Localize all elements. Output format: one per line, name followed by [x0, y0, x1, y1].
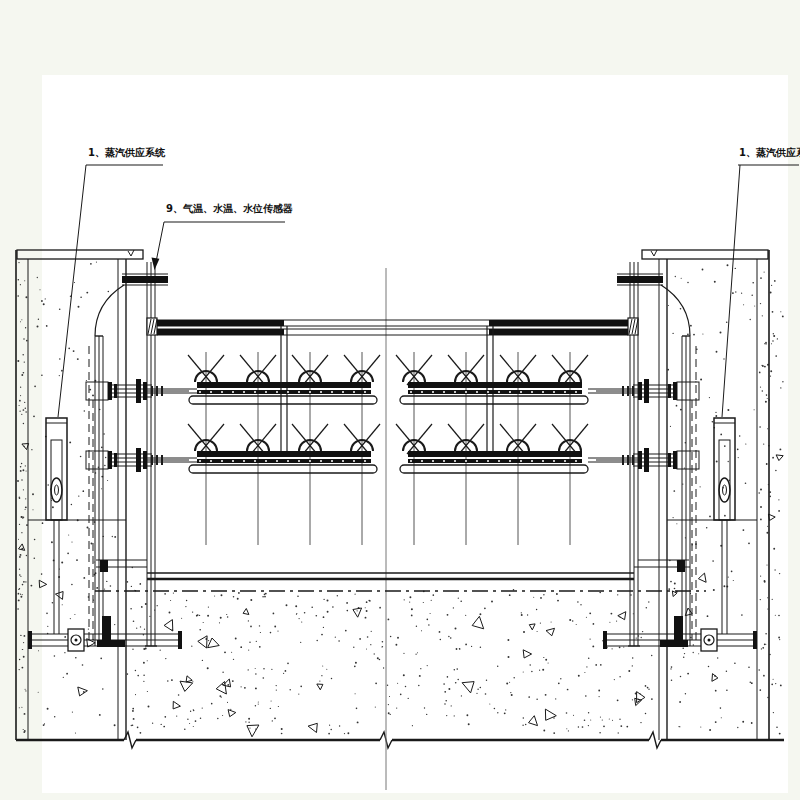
stipple-dot: [25, 327, 26, 328]
stipple-dot: [409, 602, 410, 603]
aggregate-triangle: [19, 544, 25, 551]
stipple-dot: [645, 713, 647, 715]
stipple-dot: [101, 488, 102, 489]
stipple-dot: [603, 725, 605, 727]
stipple-dot: [73, 350, 75, 352]
pipe-flange: [108, 382, 112, 400]
stipple-dot: [416, 626, 417, 627]
stipple-dot: [82, 664, 84, 666]
stipple-dot: [451, 705, 452, 706]
stipple-dot: [66, 673, 68, 675]
stipple-dot: [763, 675, 765, 677]
stipple-dot: [256, 641, 257, 642]
pipe-flange: [114, 453, 117, 467]
stipple-dot: [25, 408, 26, 409]
stipple-dot: [165, 658, 166, 659]
stipple-dot: [455, 628, 457, 630]
stipple-dot: [477, 689, 478, 690]
stipple-dot: [651, 698, 653, 700]
stipple-dot: [586, 617, 587, 618]
stipple-dot: [590, 719, 591, 720]
stipple-dot: [489, 703, 490, 704]
stipple-dot: [772, 599, 773, 600]
stipple-dot: [23, 423, 24, 424]
stipple-dot: [130, 608, 132, 610]
stipple-dot: [99, 714, 101, 716]
stipple-dot: [687, 673, 689, 675]
stipple-dot: [353, 647, 354, 648]
stipple-dot: [84, 410, 85, 411]
pipe-flange: [668, 384, 671, 398]
stipple-dot: [295, 605, 297, 607]
stipple-dot: [131, 586, 132, 587]
stipple-dot: [509, 594, 511, 596]
stipple-dot: [20, 466, 22, 468]
stipple-dot: [22, 517, 24, 519]
stipple-dot: [92, 394, 94, 396]
stipple-dot: [231, 652, 232, 653]
stipple-dot: [327, 600, 329, 602]
stipple-dot: [578, 726, 579, 727]
stipple-dot: [23, 729, 24, 730]
stipple-dot: [41, 573, 43, 575]
stipple-dot: [332, 606, 334, 608]
stipple-dot: [778, 637, 780, 639]
stipple-dot: [86, 380, 87, 381]
stipple-dot: [403, 653, 404, 654]
stipple-dot: [673, 490, 675, 492]
stipple-dot: [426, 619, 428, 621]
stipple-dot: [321, 675, 322, 676]
stipple-dot: [41, 300, 43, 302]
stipple-dot: [33, 415, 35, 417]
steam-header-pipe: [157, 329, 284, 335]
stipple-dot: [598, 696, 599, 697]
stipple-dot: [762, 390, 764, 392]
stipple-dot: [497, 666, 498, 667]
stipple-dot: [26, 470, 27, 471]
stipple-dot: [19, 588, 20, 589]
stipple-dot: [771, 285, 772, 286]
stipple-dot: [238, 592, 240, 594]
stipple-dot: [409, 596, 411, 598]
pipe-flange: [673, 451, 677, 469]
stipple-dot: [245, 721, 246, 722]
stipple-dot: [430, 613, 431, 614]
stipple-dot: [761, 365, 762, 366]
stipple-dot: [381, 646, 382, 647]
stipple-dot: [25, 296, 27, 298]
stipple-dot: [573, 715, 574, 716]
pipe-flange: [668, 453, 671, 467]
stipple-dot: [322, 666, 323, 667]
stipple-dot: [224, 651, 226, 653]
stipple-dot: [748, 666, 750, 668]
stipple-dot: [143, 675, 145, 677]
stipple-dot: [227, 684, 229, 686]
stipple-dot: [742, 529, 744, 531]
stipple-dot: [772, 457, 774, 459]
stipple-dot: [602, 719, 603, 720]
stipple-dot: [773, 679, 774, 680]
stipple-dot: [25, 506, 27, 508]
stipple-dot: [388, 712, 390, 714]
stipple-dot: [743, 304, 744, 305]
stipple-dot: [76, 559, 78, 561]
stipple-dot: [700, 726, 701, 727]
stipple-dot: [63, 677, 64, 678]
stipple-dot: [770, 375, 771, 376]
stipple-dot: [356, 707, 358, 709]
stipple-dot: [21, 463, 22, 464]
stipple-dot: [248, 669, 249, 670]
stipple-dot: [255, 673, 257, 675]
stipple-dot: [595, 664, 597, 666]
stipple-dot: [219, 622, 220, 623]
stipple-dot: [233, 659, 234, 660]
stipple-dot: [741, 293, 742, 294]
stipple-dot: [724, 445, 726, 447]
stipple-dot: [23, 656, 25, 658]
stipple-dot: [702, 333, 703, 334]
stipple-dot: [46, 612, 48, 614]
stipple-dot: [20, 284, 21, 285]
stipple-dot: [38, 692, 39, 693]
stipple-dot: [132, 710, 134, 712]
stipple-dot: [713, 589, 715, 591]
stipple-dot: [24, 361, 25, 362]
stipple-dot: [712, 421, 714, 423]
stipple-dot: [779, 733, 781, 735]
stipple-dot: [23, 409, 25, 411]
stipple-dot: [331, 678, 332, 679]
stipple-dot: [330, 729, 331, 730]
stipple-dot: [765, 342, 767, 344]
stipple-dot: [388, 704, 389, 705]
stipple-dot: [741, 614, 743, 616]
stipple-dot: [21, 532, 22, 533]
stipple-dot: [197, 614, 199, 616]
stipple-dot: [326, 669, 327, 670]
stipple-dot: [623, 647, 624, 648]
stipple-dot: [698, 653, 699, 654]
stipple-dot: [255, 705, 256, 706]
stipple-dot: [87, 526, 89, 528]
stipple-dot: [276, 685, 277, 686]
stipple-dot: [17, 295, 19, 297]
stipple-dot: [137, 675, 139, 677]
stipple-dot: [297, 596, 299, 598]
stipple-dot: [745, 443, 746, 444]
stipple-dot: [270, 708, 271, 709]
stipple-dot: [497, 712, 498, 713]
stipple-dot: [592, 645, 594, 647]
stipple-dot: [617, 594, 618, 595]
stipple-dot: [417, 652, 418, 653]
stipple-dot: [397, 683, 398, 684]
stipple-dot: [459, 649, 460, 650]
stipple-dot: [354, 666, 356, 668]
stipple-dot: [444, 703, 446, 705]
stipple-dot: [237, 598, 239, 600]
stipple-dot: [774, 280, 776, 282]
stipple-dot: [19, 411, 20, 412]
stipple-dot: [675, 276, 676, 277]
stipple-dot: [164, 716, 166, 718]
stipple-dot: [195, 720, 197, 722]
stipple-dot: [114, 724, 116, 726]
stipple-dot: [296, 613, 297, 614]
stipple-dot: [548, 662, 549, 663]
stipple-dot: [34, 557, 36, 559]
stipple-dot: [346, 610, 348, 612]
stipple-dot: [759, 426, 761, 428]
stipple-dot: [21, 414, 22, 415]
stipple-dot: [733, 580, 734, 581]
stipple-dot: [765, 644, 766, 645]
stipple-dot: [759, 372, 761, 374]
stipple-dot: [717, 657, 718, 658]
stipple-dot: [539, 670, 540, 671]
stipple-dot: [176, 715, 177, 716]
stipple-dot: [359, 638, 361, 640]
stipple-dot: [140, 626, 141, 627]
stipple-dot: [184, 728, 186, 730]
stipple-dot: [779, 639, 780, 640]
stipple-dot: [418, 685, 419, 686]
stipple-dot: [764, 272, 765, 273]
stipple-dot: [763, 443, 764, 444]
stipple-dot: [750, 319, 751, 320]
stipple-dot: [365, 607, 366, 608]
stipple-dot: [208, 640, 209, 641]
stipple-dot: [723, 358, 724, 359]
stipple-dot: [628, 670, 630, 672]
stipple-dot: [780, 387, 781, 388]
stipple-dot: [400, 694, 402, 696]
stipple-dot: [737, 448, 739, 450]
stipple-dot: [766, 532, 768, 534]
stipple-dot: [486, 680, 487, 681]
stipple-dot: [367, 636, 369, 638]
stipple-dot: [75, 657, 77, 659]
stipple-dot: [17, 608, 19, 610]
stipple-dot: [38, 319, 39, 320]
stipple-dot: [468, 723, 470, 725]
pipe-flange: [136, 448, 141, 472]
stipple-dot: [221, 594, 223, 596]
stipple-dot: [281, 728, 283, 730]
pipe-flange: [143, 451, 147, 469]
stipple-dot: [568, 730, 569, 731]
stipple-dot: [674, 583, 676, 585]
stipple-dot: [34, 385, 36, 387]
stipple-dot: [767, 608, 768, 609]
steam-header-pipe: [489, 329, 628, 335]
stipple-dot: [455, 682, 457, 684]
stipple-dot: [767, 597, 768, 598]
stipple-dot: [589, 612, 591, 614]
stipple-dot: [39, 289, 40, 290]
stipple-dot: [249, 641, 250, 642]
stipple-dot: [706, 527, 708, 529]
stipple-dot: [461, 695, 462, 696]
pipe-flange: [644, 448, 649, 472]
stipple-dot: [19, 659, 20, 660]
stipple-dot: [327, 611, 329, 613]
stipple-dot: [311, 606, 313, 608]
stipple-dot: [19, 405, 20, 406]
stipple-dot: [651, 655, 652, 656]
stipple-dot: [107, 480, 108, 481]
stipple-dot: [620, 725, 622, 727]
stipple-dot: [44, 723, 45, 724]
stipple-dot: [71, 504, 72, 505]
stipple-dot: [420, 668, 421, 669]
stipple-dot: [773, 333, 774, 334]
stipple-dot: [523, 671, 524, 672]
stipple-dot: [127, 673, 129, 675]
stipple-dot: [181, 618, 182, 619]
stipple-dot: [101, 447, 103, 449]
stipple-dot: [553, 717, 555, 719]
stipple-dot: [262, 677, 264, 679]
stipple-dot: [458, 598, 459, 599]
stipple-dot: [262, 596, 264, 598]
stipple-dot: [136, 628, 137, 629]
stipple-dot: [370, 644, 371, 645]
stipple-dot: [557, 600, 559, 602]
stipple-dot: [192, 611, 193, 612]
stipple-dot: [491, 601, 493, 603]
stipple-dot: [379, 607, 381, 609]
stipple-dot: [371, 631, 372, 632]
stipple-dot: [700, 379, 702, 381]
stipple-dot: [715, 721, 717, 723]
stipple-dot: [321, 634, 323, 636]
stipple-dot: [509, 682, 510, 683]
stipple-dot: [670, 581, 672, 583]
stipple-dot: [22, 469, 24, 471]
stipple-dot: [62, 604, 63, 605]
stipple-dot: [248, 650, 249, 651]
stipple-dot: [23, 372, 25, 374]
stipple-dot: [767, 526, 768, 527]
stipple-dot: [169, 612, 171, 614]
stipple-dot: [283, 673, 284, 674]
stipple-dot: [773, 548, 775, 550]
stipple-dot: [19, 497, 20, 498]
stipple-dot: [676, 523, 677, 524]
stipple-dot: [357, 610, 358, 611]
steam-header-pipe: [157, 320, 284, 326]
stipple-dot: [545, 659, 547, 661]
stipple-dot: [765, 633, 767, 635]
stipple-dot: [775, 615, 776, 616]
stipple-dot: [20, 576, 21, 577]
stipple-dot: [545, 694, 547, 696]
stipple-dot: [47, 484, 49, 486]
steam-header-pipe: [489, 320, 628, 326]
stipple-dot: [21, 374, 23, 376]
stipple-dot: [540, 622, 541, 623]
stipple-dot: [408, 698, 409, 699]
stipple-dot: [323, 627, 324, 628]
stipple-dot: [682, 647, 684, 649]
stipple-dot: [766, 564, 767, 565]
stipple-dot: [585, 695, 587, 697]
stipple-dot: [648, 601, 649, 602]
stipple-dot: [25, 411, 27, 413]
stipple-dot: [668, 588, 670, 590]
stipple-dot: [139, 583, 141, 585]
stipple-dot: [329, 725, 330, 726]
stipple-dot: [143, 681, 144, 682]
callout-steam-supply-right: 1、蒸汽供应系统: [739, 147, 800, 158]
stipple-dot: [20, 395, 21, 396]
stipple-dot: [258, 701, 259, 702]
stipple-dot: [767, 398, 768, 399]
stipple-dot: [566, 728, 567, 729]
stipple-dot: [222, 671, 223, 672]
stipple-dot: [276, 689, 277, 690]
stipple-dot: [619, 646, 621, 648]
stipple-dot: [18, 262, 19, 263]
stipple-dot: [37, 277, 38, 278]
sensor-conduit: [617, 276, 663, 283]
stipple-dot: [614, 679, 615, 680]
stipple-dot: [540, 597, 542, 599]
paper-sheet: [42, 75, 788, 793]
stipple-dot: [227, 616, 229, 618]
stipple-dot: [344, 733, 345, 734]
stipple-dot: [298, 694, 299, 695]
stipple-dot: [619, 719, 620, 720]
stipple-dot: [421, 630, 422, 631]
stipple-dot: [19, 707, 20, 708]
stipple-dot: [208, 606, 209, 607]
stipple-dot: [507, 639, 509, 641]
stipple-dot: [411, 608, 413, 610]
stipple-dot: [22, 594, 23, 595]
stipple-dot: [67, 552, 69, 554]
stipple-dot: [779, 448, 781, 450]
stipple-dot: [775, 470, 777, 472]
stipple-dot: [100, 657, 102, 659]
stipple-dot: [765, 401, 767, 403]
stipple-dot: [454, 669, 456, 671]
stipple-dot: [68, 534, 69, 535]
engineering-drawing: 1、蒸汽供应系统 9、气温、水温、水位传感器 1、蒸汽供应系统: [0, 0, 800, 800]
stipple-dot: [31, 449, 32, 450]
stipple-dot: [132, 649, 133, 650]
stipple-dot: [646, 607, 647, 608]
stipple-dot: [465, 644, 467, 646]
stipple-dot: [513, 677, 515, 679]
stipple-dot: [751, 722, 753, 724]
stipple-dot: [274, 717, 276, 719]
stipple-dot: [88, 628, 89, 629]
stipple-dot: [521, 612, 522, 613]
stipple-dot: [771, 343, 772, 344]
stipple-dot: [45, 298, 46, 299]
stipple-dot: [760, 387, 761, 388]
heater-pipe: [408, 451, 582, 457]
stipple-dot: [281, 733, 283, 735]
stipple-dot: [132, 708, 134, 710]
stipple-dot: [70, 618, 71, 619]
stipple-dot: [21, 707, 22, 708]
